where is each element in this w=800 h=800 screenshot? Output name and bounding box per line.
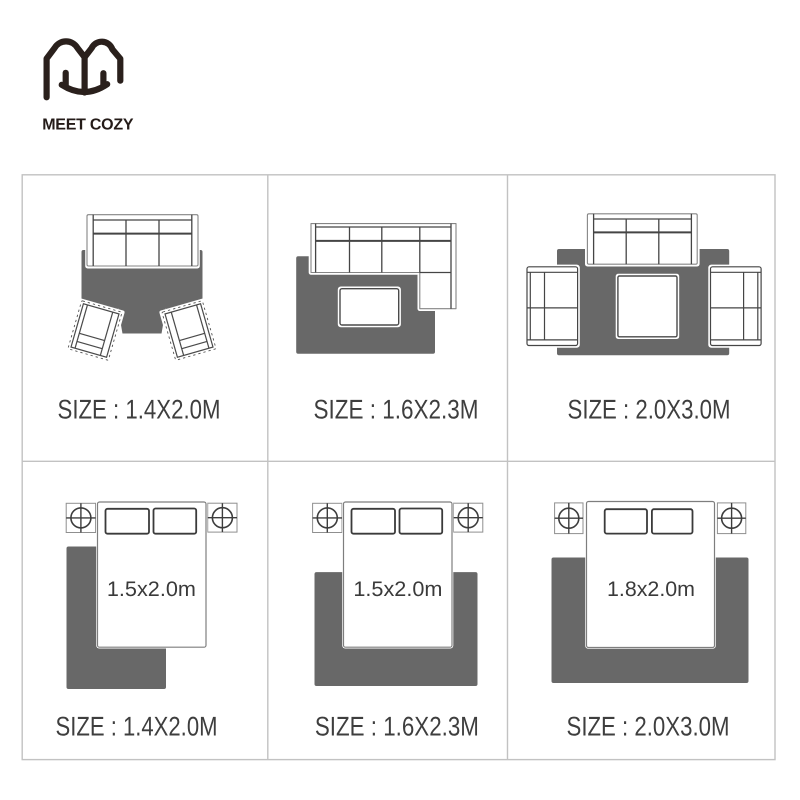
svg-text:SIZE : 1.4X2.0M: SIZE : 1.4X2.0M [58,395,221,425]
svg-text:SIZE : 1.6X2.3M: SIZE : 1.6X2.3M [314,395,479,425]
svg-text:MEET COZY: MEET COZY [42,117,134,134]
svg-text:1.5x2.0m: 1.5x2.0m [107,578,196,601]
svg-text:1.5x2.0m: 1.5x2.0m [353,578,442,601]
svg-text:SIZE : 1.4X2.0M: SIZE : 1.4X2.0M [56,712,218,742]
svg-text:SIZE : 1.6X2.3M: SIZE : 1.6X2.3M [315,712,479,742]
svg-text:SIZE : 2.0X3.0M: SIZE : 2.0X3.0M [568,395,731,425]
svg-text:1.8x2.0m: 1.8x2.0m [607,578,695,601]
svg-text:SIZE : 2.0X3.0M: SIZE : 2.0X3.0M [567,712,730,742]
